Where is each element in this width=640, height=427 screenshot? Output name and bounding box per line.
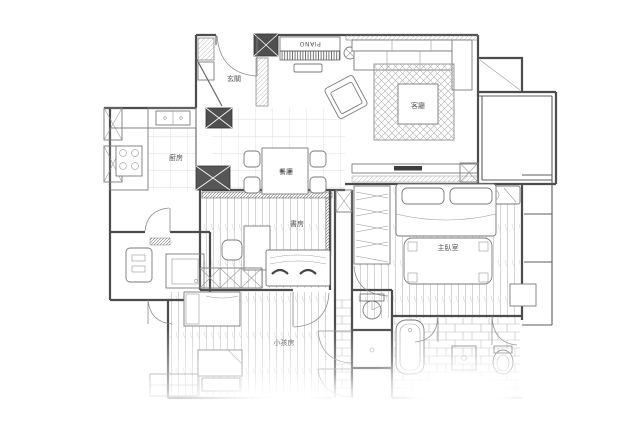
column-box-dark — [206, 108, 232, 128]
foyer-angled-wall — [196, 58, 222, 106]
tv-cabinet — [352, 164, 478, 182]
kids-bed — [184, 292, 240, 326]
sofa-chaise — [452, 40, 472, 90]
dining-chair — [310, 177, 326, 193]
dining-chair — [244, 151, 260, 167]
living-room: 客廳 — [324, 40, 478, 182]
hall-column-box — [336, 190, 352, 212]
vent-grille — [150, 238, 170, 245]
room-label-master: 主臥室 — [438, 243, 459, 252]
column-box — [104, 108, 122, 140]
shower-drain — [370, 348, 374, 352]
balcony-door-line — [480, 60, 520, 90]
dining-chair — [310, 151, 326, 167]
dining-chair — [244, 177, 260, 193]
column-box-dark — [254, 34, 278, 56]
entry-door-swing — [217, 36, 257, 76]
kitchen-island-cabinet — [196, 166, 230, 190]
study-right-wall-hatch — [326, 198, 331, 256]
floor-plan-screenshot: 玄關 PIANO 客廳 — [0, 0, 640, 427]
room-label-living: 客廳 — [411, 101, 425, 110]
room-label-study: 書房 — [290, 219, 304, 228]
piano: PIANO — [280, 37, 340, 72]
room-label-kitchen: 廚房 — [169, 153, 183, 162]
shower-stall — [166, 254, 204, 288]
piano-bench — [294, 64, 322, 72]
piano-label: PIANO — [299, 40, 321, 47]
living-window-band — [346, 35, 478, 40]
shoe-cabinet — [198, 38, 214, 60]
bathroom-sink — [126, 248, 152, 282]
kids-desk — [198, 350, 242, 376]
room-label-kids: 小孩房 — [274, 338, 295, 347]
common-bathroom — [126, 208, 204, 288]
kids-cabinet — [202, 378, 240, 391]
piano-keyboard — [280, 51, 340, 60]
foyer: 玄關 — [198, 36, 257, 83]
floor-plan-drawing: 玄關 PIANO 客廳 — [0, 0, 640, 427]
study-daybed — [266, 250, 330, 286]
stove — [116, 146, 142, 176]
foyer-screen-partition — [256, 58, 268, 106]
ac-outdoor-unit — [510, 284, 536, 306]
kitchen-sink — [156, 111, 190, 125]
room-label-dining: 餐廳 — [279, 167, 293, 176]
hall-brick-floor — [336, 298, 352, 398]
bathtub — [396, 320, 424, 374]
desk-chair — [222, 240, 242, 260]
master-bed — [396, 184, 496, 236]
bathroom-door-swing — [145, 208, 170, 232]
tv-unit — [394, 166, 422, 171]
room-label-foyer: 玄關 — [227, 74, 241, 83]
